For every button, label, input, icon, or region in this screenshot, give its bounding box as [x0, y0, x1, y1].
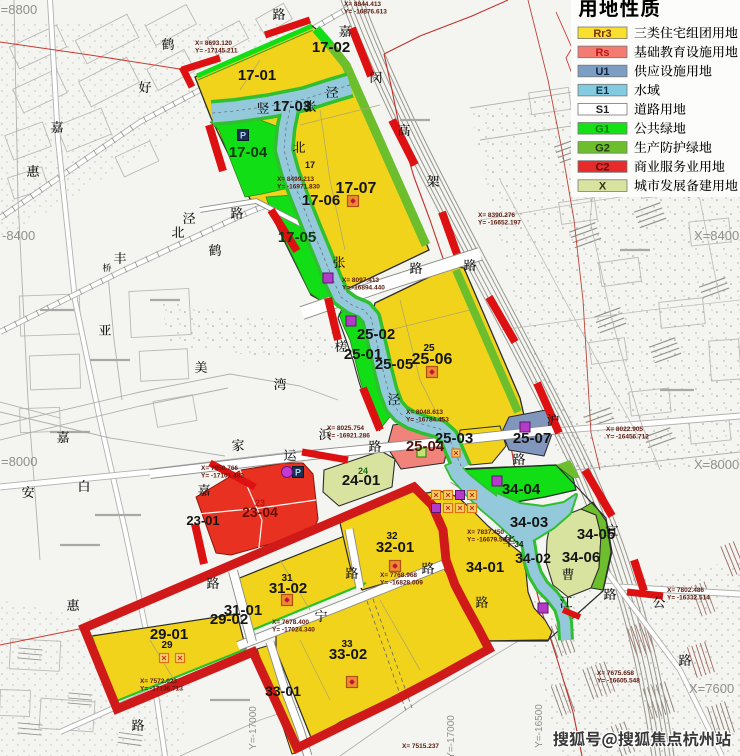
svg-text:33: 33: [341, 639, 353, 650]
svg-text:X: X: [599, 181, 607, 193]
svg-text:X= 7837.450: X= 7837.450: [467, 529, 504, 536]
svg-text:24: 24: [358, 466, 368, 476]
svg-text:X= 8844.413: X= 8844.413: [344, 1, 381, 8]
svg-text:X= 7572.023: X= 7572.023: [140, 678, 177, 685]
svg-text:17-07: 17-07: [336, 180, 377, 197]
svg-text:X= 7768.968: X= 7768.968: [380, 572, 417, 579]
svg-text:X=8400: X=8400: [694, 228, 739, 243]
svg-text:34-04: 34-04: [502, 481, 541, 498]
svg-text:X= 7678.400: X= 7678.400: [272, 619, 309, 626]
svg-text:S1: S1: [596, 104, 609, 116]
svg-text:17-05: 17-05: [278, 229, 316, 246]
svg-text:33-01: 33-01: [265, 683, 301, 699]
svg-text:X= 7515.237: X= 7515.237: [402, 743, 439, 750]
svg-text:X=8000: X=8000: [694, 457, 739, 472]
svg-text:Y= -16894.440: Y= -16894.440: [342, 285, 385, 292]
svg-text:29: 29: [161, 640, 173, 651]
svg-text:Y= -16784.453: Y= -16784.453: [406, 417, 449, 424]
svg-text:Y= -16921.286: Y= -16921.286: [327, 433, 370, 440]
svg-text:Y= -16456.712: Y= -16456.712: [606, 434, 649, 441]
svg-text:25-03: 25-03: [435, 430, 473, 447]
svg-text:X= 7950.766: X= 7950.766: [201, 465, 238, 472]
svg-text:Y=-16500: Y=-16500: [534, 704, 545, 748]
svg-text:31: 31: [281, 573, 293, 584]
svg-text:Y= -16828.009: Y= -16828.009: [380, 580, 423, 587]
svg-text:Y= -16605.548: Y= -16605.548: [597, 678, 640, 685]
svg-text:Y= -16652.197: Y= -16652.197: [478, 220, 521, 227]
svg-text:Y= -16332.514: Y= -16332.514: [667, 595, 710, 602]
svg-text:Rs: Rs: [595, 47, 609, 59]
svg-text:Y= -17024.340: Y= -17024.340: [272, 627, 315, 634]
svg-text:Y= -16971.830: Y= -16971.830: [277, 184, 320, 191]
svg-text:X= 8693.120: X= 8693.120: [195, 40, 232, 47]
svg-text:C2: C2: [595, 162, 609, 174]
svg-text:34-02: 34-02: [515, 550, 551, 566]
svg-text:Y= -16876.613: Y= -16876.613: [344, 9, 387, 16]
svg-text:34-01: 34-01: [466, 559, 504, 576]
svg-text:P: P: [240, 130, 246, 140]
svg-text:17-01: 17-01: [238, 67, 276, 84]
svg-text:25-07: 25-07: [513, 430, 551, 447]
svg-text:X= 7675.658: X= 7675.658: [597, 670, 634, 677]
svg-text:U1: U1: [595, 66, 609, 78]
svg-text:X= 8048.613: X= 8048.613: [406, 409, 443, 416]
svg-text:34: 34: [515, 540, 524, 549]
svg-text:X=7600: X=7600: [689, 681, 734, 696]
svg-text:17: 17: [305, 160, 315, 170]
svg-text:-8400: -8400: [2, 228, 35, 243]
svg-text:P: P: [295, 467, 301, 477]
svg-text:23-01: 23-01: [186, 513, 219, 528]
svg-text:34-06: 34-06: [562, 549, 600, 566]
svg-text:Y= -17136.713: Y= -17136.713: [140, 686, 183, 693]
svg-text:Y= -17101.483: Y= -17101.483: [201, 473, 244, 480]
svg-text:=8000: =8000: [1, 454, 38, 469]
svg-text:X= 8097.413: X= 8097.413: [342, 277, 379, 284]
svg-text:Rr3: Rr3: [593, 28, 611, 40]
svg-text:Y=-17000: Y=-17000: [446, 715, 457, 756]
svg-text:X= 8390.276: X= 8390.276: [478, 212, 515, 219]
svg-text:25-05: 25-05: [375, 356, 413, 373]
svg-text:32: 32: [386, 531, 398, 542]
svg-text:29-02: 29-02: [210, 611, 248, 628]
svg-text:25-02: 25-02: [357, 326, 395, 343]
svg-text:34-03: 34-03: [510, 514, 548, 531]
svg-text:G1: G1: [595, 123, 610, 135]
svg-text:X= 7802.486: X= 7802.486: [667, 587, 704, 594]
svg-text:17-04: 17-04: [229, 144, 268, 161]
svg-text:E1: E1: [596, 85, 609, 97]
svg-text:17-02: 17-02: [312, 39, 350, 56]
svg-text:X= 8022.905: X= 8022.905: [606, 426, 643, 433]
svg-text:G2: G2: [595, 142, 610, 154]
svg-text:Y= -16679.563: Y= -16679.563: [467, 537, 510, 544]
svg-text:Y=-17000: Y=-17000: [248, 706, 259, 750]
svg-text:23: 23: [255, 498, 265, 508]
svg-text:25: 25: [423, 343, 435, 354]
svg-text:X= 8499.213: X= 8499.213: [277, 176, 314, 183]
svg-text:X= 8025.754: X= 8025.754: [327, 425, 364, 432]
svg-text:Y= -17145.211: Y= -17145.211: [195, 48, 238, 55]
svg-text:17-06: 17-06: [302, 192, 340, 209]
svg-text:Y=8800: Y=8800: [0, 2, 37, 17]
